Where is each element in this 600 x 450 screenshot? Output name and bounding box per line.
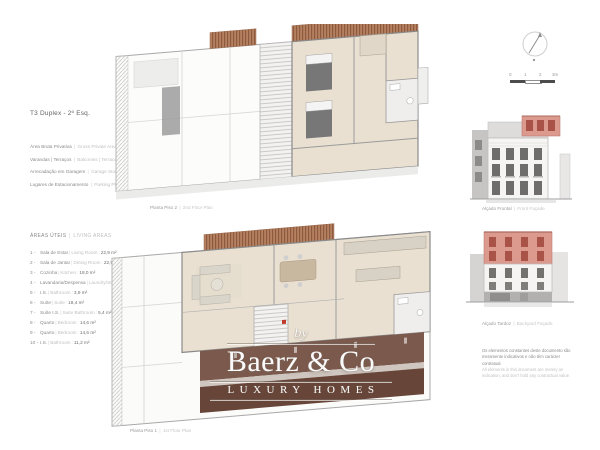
area-label-en: Suite bbox=[54, 300, 65, 305]
summary-label-pt: Varandas | Terraços bbox=[30, 157, 71, 162]
area-label-pt: Sala de Jantar bbox=[40, 260, 70, 265]
scale-label: 1 bbox=[524, 72, 527, 77]
area-number: 4 - bbox=[30, 280, 40, 285]
caption-pt: Alçado Tardoz bbox=[482, 321, 511, 326]
area-number: 6 - bbox=[30, 300, 40, 305]
caption-en: Backyard Façade bbox=[517, 321, 553, 326]
separator: | bbox=[90, 182, 93, 187]
area-label-pt: I.S. bbox=[40, 290, 47, 295]
plan-piso1-caption: Planta Piso 1 | 1st Floor Plan bbox=[130, 428, 191, 433]
entrance-marker bbox=[282, 320, 286, 324]
baerz-watermark: by Baerz & Co LUXURY HOMES bbox=[203, 326, 399, 401]
summary-label-pt: Lugares de Estacionamento bbox=[30, 182, 88, 187]
area-label-en: Bedroom bbox=[58, 330, 77, 335]
area-label-pt: Cozinha bbox=[40, 270, 57, 275]
elevation-rear bbox=[464, 224, 576, 324]
disclaimer-pt: Os elementos constantes deste documento … bbox=[482, 348, 579, 367]
wardrobe bbox=[360, 34, 386, 56]
scale-label: 0 bbox=[509, 72, 512, 77]
area-label-pt: Lavandaria/Despensa bbox=[40, 280, 86, 285]
stairs bbox=[260, 42, 292, 180]
separator: | bbox=[178, 205, 181, 210]
areas-header-pt: ÁREAS ÚTEIS bbox=[30, 233, 66, 239]
scale-segment bbox=[510, 80, 525, 83]
caption-pt: Planta Piso 2 bbox=[150, 205, 177, 210]
summary-label-pt: Arrecadação em Garagem bbox=[30, 169, 85, 174]
area-label-pt: Quarto bbox=[40, 330, 54, 335]
watermark-brand: Baerz & Co bbox=[203, 345, 399, 380]
plan-piso2-drawing bbox=[116, 24, 428, 199]
caption-en: 1st Floor Plan bbox=[163, 428, 191, 433]
area-label-pt: I.S. bbox=[40, 340, 47, 345]
watermark-tagline: LUXURY HOMES bbox=[203, 384, 399, 396]
elevation-front bbox=[466, 96, 576, 211]
area-label-en: Living Room bbox=[71, 250, 97, 255]
area-number: 2 - bbox=[30, 260, 40, 265]
garage-door bbox=[490, 293, 510, 301]
separator: | bbox=[73, 144, 76, 149]
area-value: 18,0 m² bbox=[79, 270, 95, 275]
area-value: 14,6 m² bbox=[80, 320, 96, 325]
area-number: 5 - bbox=[30, 290, 40, 295]
sofa-icon bbox=[192, 275, 200, 300]
disclaimer: Os elementos constantes deste documento … bbox=[482, 348, 579, 379]
scale-label: 2 bbox=[539, 72, 542, 77]
areas-header: ÁREAS ÚTEIS | LIVING AREAS bbox=[30, 233, 111, 239]
area-value: 11,2 m² bbox=[74, 340, 90, 345]
floor-plan-piso2 bbox=[110, 24, 432, 216]
caption-pt: Planta Piso 1 bbox=[130, 428, 157, 433]
dark-room bbox=[162, 86, 180, 136]
unit-title: T3 Duplex - 2º Esq. bbox=[30, 110, 90, 117]
scale-bar: 0 1 2 3m bbox=[506, 72, 570, 86]
brochure-page: T3 Duplex - 2º Esq. Área Bruta Privativa… bbox=[0, 0, 600, 450]
separator: | bbox=[513, 206, 516, 211]
area-label-en: Bathroom bbox=[50, 340, 70, 345]
watermark-rule bbox=[227, 343, 375, 344]
dining-table bbox=[280, 259, 316, 282]
separator: | bbox=[68, 233, 72, 239]
area-number: 1 - bbox=[30, 250, 40, 255]
summary-label-pt: Área Bruta Privativa bbox=[30, 144, 72, 149]
area-number: 3 - bbox=[30, 270, 40, 275]
area-label-en: Bathroom bbox=[50, 290, 70, 295]
watermark-rule bbox=[210, 381, 392, 382]
watermark-rule bbox=[210, 399, 392, 400]
area-label-en: Kitchen bbox=[60, 270, 76, 275]
elevation-rear-caption: Alçado Tardoz | Backyard Façade bbox=[482, 321, 553, 326]
area-label-en: Bedroom bbox=[58, 320, 77, 325]
scale-segment bbox=[540, 80, 555, 83]
caption-pt: Alçado Frontal bbox=[482, 206, 512, 211]
area-value: 14,6 m² bbox=[80, 330, 96, 335]
compass-north-icon bbox=[508, 26, 562, 68]
separator: | bbox=[512, 321, 515, 326]
separator: | bbox=[87, 169, 90, 174]
area-number: 10 - bbox=[30, 340, 40, 345]
area-number: 9 - bbox=[30, 330, 40, 335]
area-label-en: Suite Bathroom bbox=[63, 310, 95, 315]
separator: | bbox=[73, 157, 76, 162]
caption-en: 2nd Floor Plan bbox=[183, 205, 213, 210]
disclaimer-en: All elements in this document are merely… bbox=[482, 367, 579, 380]
area-number: 7 - bbox=[30, 310, 40, 315]
separator: | bbox=[158, 428, 161, 433]
area-value: 3,9 m² bbox=[74, 290, 87, 295]
area-number: 8 - bbox=[30, 320, 40, 325]
plan-piso2-caption: Planta Piso 2 | 2nd Floor Plan bbox=[150, 205, 213, 210]
watermark-by: by bbox=[203, 326, 399, 342]
area-value: 18,4 m² bbox=[68, 300, 84, 305]
area-label-pt: Sala de Estar bbox=[40, 250, 68, 255]
area-label-pt: Suíte bbox=[40, 300, 51, 305]
caption-en: Front Façade bbox=[517, 206, 544, 211]
area-label-pt: Quarto bbox=[40, 320, 54, 325]
area-label-pt: Suíte I.S. bbox=[40, 310, 59, 315]
side-balcony bbox=[418, 67, 428, 104]
scale-label: 3m bbox=[552, 72, 558, 77]
area-label-en: Dining Room bbox=[73, 260, 100, 265]
elevation-front-caption: Alçado Frontal | Front Façade bbox=[482, 206, 545, 211]
